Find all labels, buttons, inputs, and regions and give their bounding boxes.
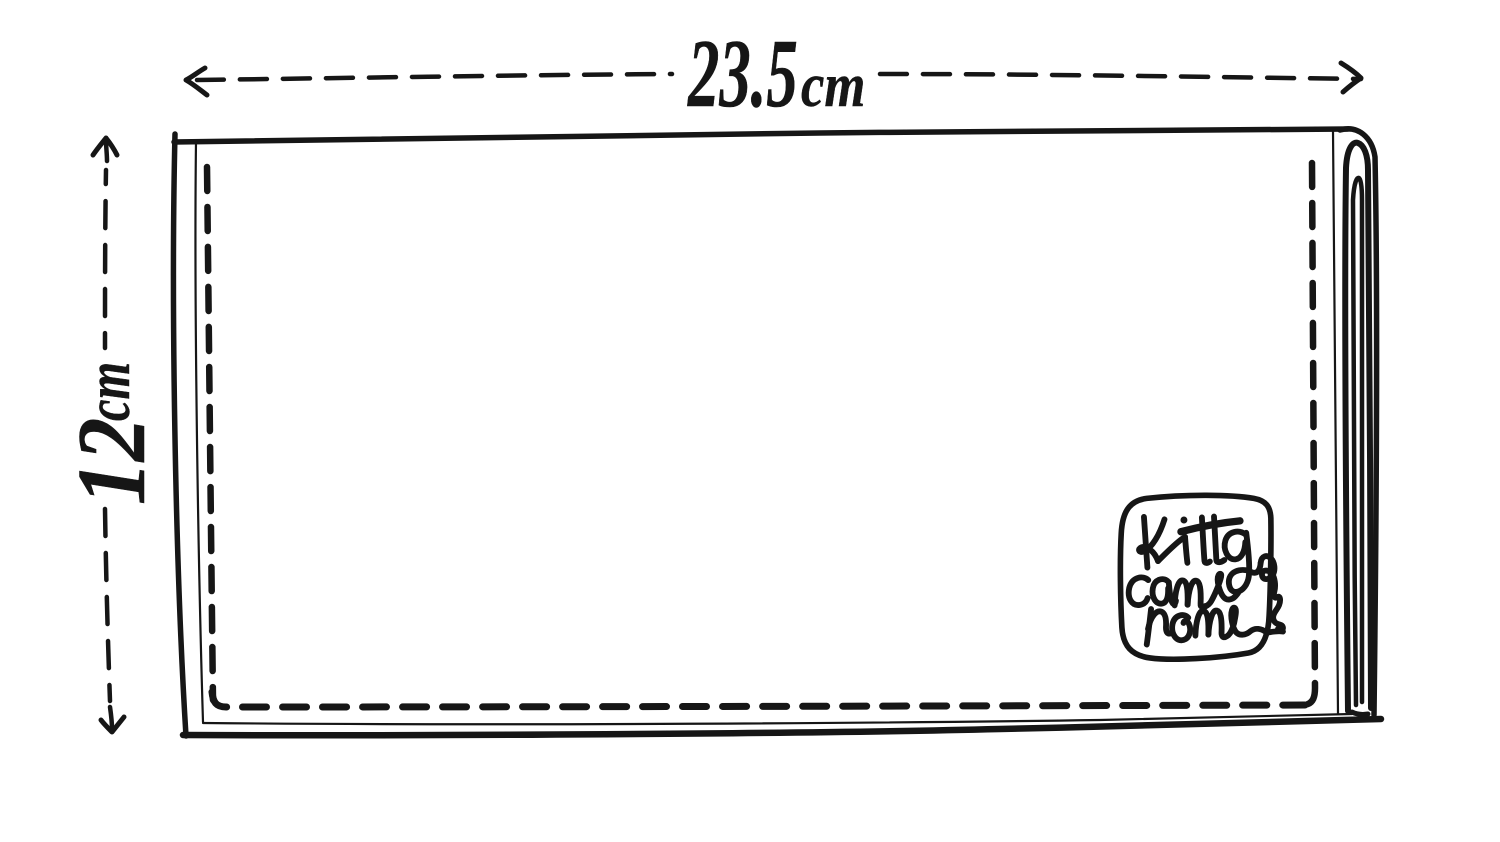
svg-text:cm: cm bbox=[74, 362, 143, 421]
svg-text:12: 12 bbox=[57, 418, 166, 505]
svg-text:cm: cm bbox=[801, 52, 865, 120]
svg-text:23.5: 23.5 bbox=[687, 19, 798, 127]
